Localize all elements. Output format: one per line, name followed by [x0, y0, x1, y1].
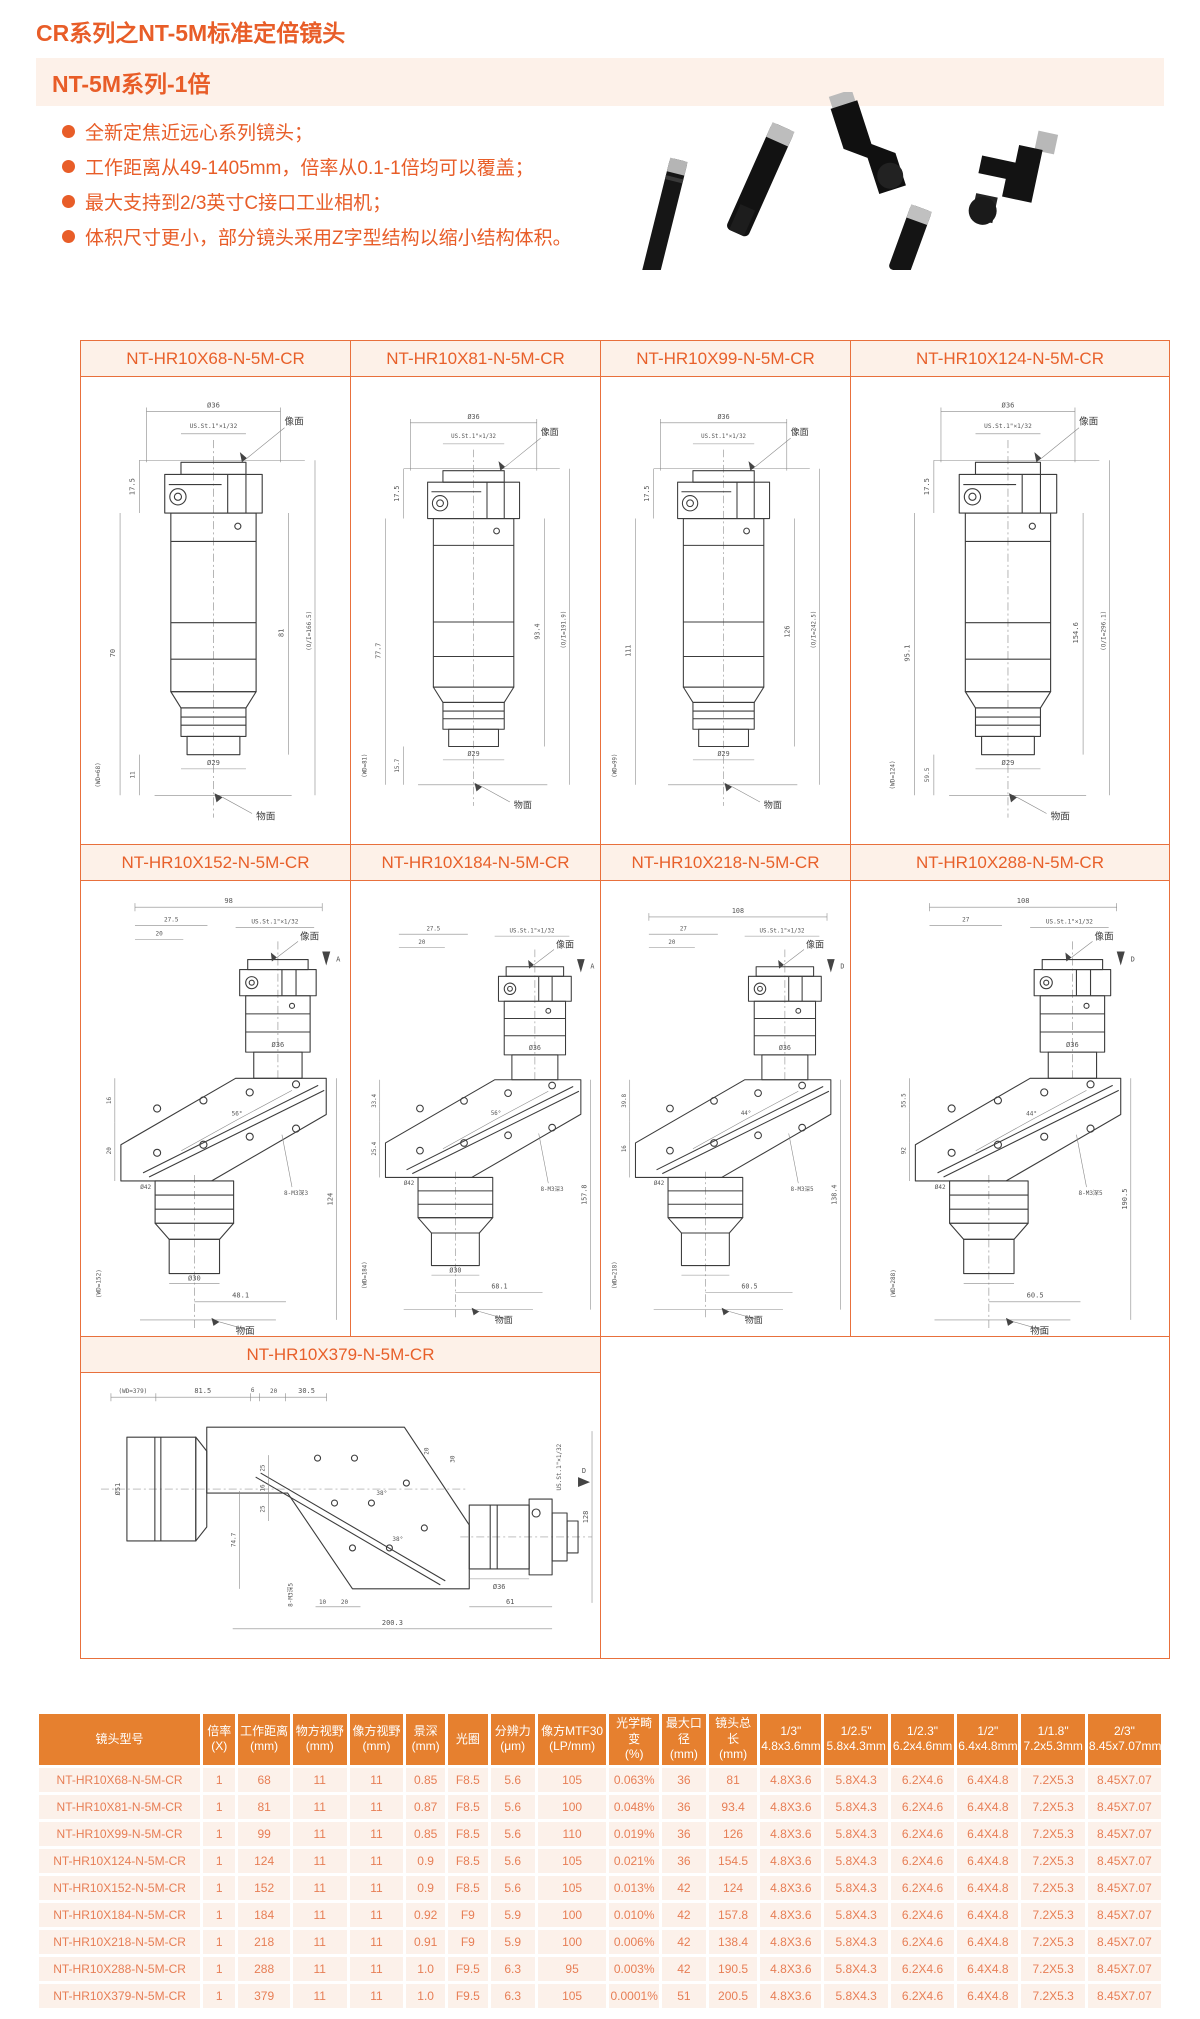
cell-sensor-1-2: 6.4X4.8 — [957, 1903, 1018, 1927]
cell-aperture: F8.5 — [448, 1822, 488, 1846]
cell-aperture: F9 — [448, 1930, 488, 1954]
dim-label: US.St.1"×1/32 — [451, 434, 496, 440]
cell-image-fov: 11 — [350, 1903, 404, 1927]
dim-label: 56° — [491, 1111, 501, 1117]
header-line1: 1/2.5" — [825, 1724, 886, 1740]
table-header-cell: 1/2.5" 5.8x4.3mm — [824, 1714, 887, 1765]
cell-max-diameter: 36 — [662, 1768, 706, 1792]
lens-outline — [121, 960, 326, 1274]
cell-sensor-1-2-5: 5.8X4.3 — [824, 1984, 887, 2008]
cell-sensor-1-2: 6.4X4.8 — [957, 1876, 1018, 1900]
table-header-cell: 光学畸变 (%) — [609, 1714, 658, 1765]
table-header-cell: 镜头型号 — [39, 1714, 200, 1765]
dim-label: 11 — [129, 771, 136, 779]
header-line2: 6.2x4.6mm — [892, 1739, 953, 1755]
table-row: NT-HR10X99-N-5M-CR 1 99 11 11 0.85 F8.5 … — [39, 1822, 1161, 1846]
header-line1: 镜头总长 — [710, 1716, 756, 1747]
table-row: NT-HR10X81-N-5M-CR 1 81 11 11 0.87 F8.5 … — [39, 1795, 1161, 1819]
model-cell: NT-HR10X152-N-5M-CR — [39, 1876, 200, 1900]
cell-sensor-1-3: 4.8X3.6 — [760, 1930, 821, 1954]
dim-label: 20 — [106, 1147, 113, 1155]
cell-object-fov: 11 — [293, 1849, 347, 1873]
cell-mtf30: 110 — [538, 1822, 607, 1846]
view-arrow-label: D — [582, 1467, 586, 1475]
view-arrow-label: A — [336, 955, 341, 964]
dim-label: 55.5 — [900, 1093, 907, 1108]
model-cell: NT-HR10X379-N-5M-CR — [39, 1984, 200, 2008]
header-line1: 最大口径 — [663, 1716, 705, 1747]
dim-label: 38° — [392, 1536, 403, 1543]
bullet-icon — [62, 160, 75, 173]
cell-aperture: F8.5 — [448, 1768, 488, 1792]
cell-total-length: 81 — [709, 1768, 757, 1792]
table-header-cell: 物方视野 (mm) — [293, 1714, 347, 1765]
table-header-cell: 景深 (mm) — [406, 1714, 445, 1765]
dim-label: 81.5 — [194, 1387, 211, 1395]
cell-sensor-1-1-8: 7.2X5.3 — [1021, 1876, 1084, 1900]
dimension-labels: 108 27 20 US.St.1"×1/32 像面 D Ø36 44° 39.… — [612, 907, 844, 1326]
drawing-title-99: NT-HR10X99-N-5M-CR — [601, 341, 851, 377]
table-header-cell: 工作距离 (mm) — [238, 1714, 290, 1765]
dim-label: 8-M3深5 — [1078, 1189, 1103, 1197]
dim-label: Ø36 — [529, 1044, 541, 1052]
dim-label: (O/I=191.9) — [562, 611, 568, 649]
cell-working-distance: 218 — [238, 1930, 290, 1954]
dim-label: (WD=218) — [612, 1261, 618, 1289]
cell-distortion: 0.006% — [609, 1930, 658, 1954]
header-line2: (mm) — [351, 1739, 403, 1755]
dim-label: Ø36 — [272, 1040, 285, 1049]
dim-label: 111 — [625, 645, 633, 657]
table-header-cell: 分辨力 (μm) — [491, 1714, 535, 1765]
drawing-184: 27.5 20 US.St.1"×1/32 像面 A Ø36 56° 33.4 … — [351, 881, 601, 1337]
cell-working-distance: 68 — [238, 1768, 290, 1792]
cell-sensor-2-3: 8.45X7.07 — [1088, 1984, 1161, 2008]
dim-label: 16 — [260, 1484, 267, 1492]
feature-item: 工作距离从49-1405mm，倍率从0.1-1倍均可以覆盖； — [62, 149, 572, 184]
lens-drawing: Ø36 US.St.1"×1/32 像面 17.5 77.7 93.4 (O/I… — [351, 377, 600, 844]
dim-label: 25 — [260, 1464, 267, 1472]
dim-label: 108 — [732, 907, 744, 915]
cell-sensor-1-1-8: 7.2X5.3 — [1021, 1822, 1084, 1846]
dim-label: 190.5 — [1120, 1189, 1129, 1210]
drawing-218: 108 27 20 US.St.1"×1/32 像面 D Ø36 44° 39.… — [601, 881, 851, 1337]
cell-max-diameter: 42 — [662, 1930, 706, 1954]
dim-label: Ø36 — [468, 413, 480, 421]
dimension-labels: Ø36 US.St.1"×1/32 像面 17.5 95.1 154.6 (O/… — [889, 400, 1107, 822]
cell-sensor-1-3: 4.8X3.6 — [760, 1768, 821, 1792]
dim-label: 81 — [277, 629, 286, 638]
dim-label: Ø51 — [114, 1483, 122, 1496]
cell-distortion: 0.0001% — [609, 1984, 658, 2008]
cell-magnification: 1 — [203, 1822, 235, 1846]
cell-sensor-2-3: 8.45X7.07 — [1088, 1768, 1161, 1792]
dim-label: US.St.1"×1/32 — [556, 1443, 563, 1490]
dimension-labels: Ø36 US.St.1"×1/32 像面 17.5 77.7 93.4 (O/I… — [362, 413, 567, 811]
dim-label: 27 — [680, 926, 687, 932]
cell-max-diameter: 51 — [662, 1984, 706, 2008]
dim-label: (WD=288) — [890, 1269, 897, 1298]
dim-label: (WD=81) — [362, 754, 368, 778]
table-header-cell: 最大口径 (mm) — [662, 1714, 706, 1765]
drawing-title-68: NT-HR10X68-N-5M-CR — [81, 341, 351, 377]
model-cell: NT-HR10X288-N-5M-CR — [39, 1957, 200, 1981]
header-line1: 景深 — [407, 1724, 444, 1740]
dim-label: 93.4 — [534, 624, 542, 640]
dim-label: 77.7 — [375, 643, 383, 659]
table-header-cell: 1/2.3" 6.2x4.6mm — [891, 1714, 954, 1765]
dim-label: 44° — [1026, 1110, 1037, 1118]
cell-magnification: 1 — [203, 1768, 235, 1792]
dim-label: Ø29 — [207, 758, 220, 767]
dim-label: US.St.1"×1/32 — [251, 918, 298, 925]
cell-sensor-1-1-8: 7.2X5.3 — [1021, 1795, 1084, 1819]
header-line1: 光圈 — [449, 1732, 487, 1748]
dimension-lines — [630, 913, 841, 1319]
cell-sensor-1-1-8: 7.2X5.3 — [1021, 1849, 1084, 1873]
table-header-cell: 1/3" 4.8x3.6mm — [760, 1714, 821, 1765]
lens-drawing-z: 108 27 US.St.1"×1/32 像面 D Ø36 44° 55.5 9… — [851, 881, 1169, 1336]
spec-table: 镜头型号 倍率 (X) 工作距离 (mm) 物方视野 (mm) — [36, 1711, 1164, 2011]
cell-max-diameter: 36 — [662, 1822, 706, 1846]
dim-label: Ø29 — [1002, 758, 1015, 767]
lens-outline — [635, 967, 830, 1266]
drawing-99: Ø36 US.St.1"×1/32 像面 17.5 111 126 (O/I=2… — [601, 377, 851, 845]
bullet-icon — [62, 125, 75, 138]
dim-label: 44° — [741, 1111, 751, 1117]
dim-label: 30.5 — [298, 1387, 315, 1395]
table-row: NT-HR10X68-N-5M-CR 1 68 11 11 0.85 F8.5 … — [39, 1768, 1161, 1792]
dimension-labels: Ø36 US.St.1"×1/32 像面 17.5 70 81 (O/I=166… — [95, 400, 313, 822]
page-title: CR系列之NT-5M标准定倍镜头 — [36, 14, 345, 48]
dim-label: 60.5 — [741, 1283, 757, 1291]
cell-sensor-1-2-5: 5.8X4.3 — [824, 1903, 887, 1927]
lens-drawing: Ø36 US.St.1"×1/32 像面 17.5 70 81 (O/I=166… — [81, 377, 350, 844]
object-plane-label: 物面 — [514, 799, 532, 811]
cell-sensor-1-2-3: 6.2X4.6 — [891, 1903, 954, 1927]
cell-mtf30: 105 — [538, 1984, 607, 2008]
cell-distortion: 0.010% — [609, 1903, 658, 1927]
view-arrow-label: D — [1131, 955, 1135, 964]
dim-label: 95.1 — [902, 645, 911, 662]
drawing-title-288: NT-HR10X288-N-5M-CR — [851, 845, 1169, 881]
drawing-title-218: NT-HR10X218-N-5M-CR — [601, 845, 851, 881]
dim-label: Ø36 — [1066, 1040, 1079, 1049]
cell-mtf30: 95 — [538, 1957, 607, 1981]
dim-label: (WD=124) — [889, 760, 896, 789]
header-line2: (%) — [610, 1747, 657, 1763]
dim-label: 48.1 — [232, 1291, 249, 1300]
feature-item: 体积尺寸更小，部分镜头采用Z字型结构以缩小结构体积。 — [62, 219, 572, 254]
image-plane-label: 像面 — [791, 426, 809, 438]
dim-label: US.St.1"×1/32 — [701, 434, 746, 440]
image-plane-label: 像面 — [300, 930, 320, 942]
cell-resolution: 5.6 — [491, 1768, 535, 1792]
header-line1: 1/2" — [958, 1724, 1017, 1740]
dimension-labels: Ø36 US.St.1"×1/32 像面 17.5 111 126 (O/I=2… — [612, 413, 817, 811]
cell-object-fov: 11 — [293, 1984, 347, 2008]
cell-aperture: F9.5 — [448, 1984, 488, 2008]
header-line1: 像方视野 — [351, 1724, 403, 1740]
drawing-124: Ø36 US.St.1"×1/32 像面 17.5 95.1 154.6 (O/… — [851, 377, 1169, 845]
dim-label: Ø29 — [718, 750, 730, 758]
cell-working-distance: 81 — [238, 1795, 290, 1819]
cell-sensor-1-2-3: 6.2X4.6 — [891, 1822, 954, 1846]
image-plane-label: 像面 — [285, 416, 305, 428]
dim-label: US.St.1"×1/32 — [510, 928, 555, 934]
dim-label: 70 — [108, 649, 117, 658]
header-line1: 1/1.8" — [1022, 1724, 1083, 1740]
dimension-labels: 108 27 US.St.1"×1/32 像面 D Ø36 44° 55.5 9… — [890, 896, 1135, 1336]
dim-label: 27.5 — [164, 916, 179, 923]
dim-label: 20 — [156, 930, 164, 937]
dim-label: US.St.1"×1/32 — [190, 423, 238, 430]
dim-label: 108 — [1017, 896, 1030, 905]
cell-sensor-1-3: 4.8X3.6 — [760, 1903, 821, 1927]
drawing-81: Ø36 US.St.1"×1/32 像面 17.5 77.7 93.4 (O/I… — [351, 377, 601, 845]
dim-label: Ø36 — [1002, 400, 1015, 409]
drawing-152: 98 27.5 20 US.St.1"×1/32 像面 A Ø36 56° 16… — [81, 881, 351, 1337]
dimension-labels: (WD=379) 81.5 6 20 30.5 Ø51 74.7 25 16 2… — [114, 1387, 590, 1627]
dim-label: 138.4 — [831, 1185, 839, 1205]
cell-dof: 0.9 — [406, 1849, 445, 1873]
lens-outline — [127, 1427, 578, 1589]
cell-object-fov: 11 — [293, 1795, 347, 1819]
header-line2: 5.8x4.3mm — [825, 1739, 886, 1755]
header-line1: 1/3" — [761, 1724, 820, 1740]
model-cell: NT-HR10X68-N-5M-CR — [39, 1768, 200, 1792]
dim-label: (O/I=296.1) — [1100, 611, 1107, 651]
dim-label: Ø29 — [468, 750, 480, 758]
cell-sensor-1-2-3: 6.2X4.6 — [891, 1930, 954, 1954]
cell-object-fov: 11 — [293, 1957, 347, 1981]
dim-label: US.St.1"×1/32 — [760, 928, 805, 934]
cell-sensor-1-2: 6.4X4.8 — [957, 1822, 1018, 1846]
image-plane-label: 像面 — [806, 939, 824, 951]
cell-sensor-1-2-3: 6.2X4.6 — [891, 1768, 954, 1792]
dim-label: Ø42 — [404, 1180, 414, 1187]
cell-resolution: 5.9 — [491, 1930, 535, 1954]
cell-working-distance: 99 — [238, 1822, 290, 1846]
header-line1: 2/3" — [1089, 1724, 1160, 1740]
cell-sensor-1-2-5: 5.8X4.3 — [824, 1957, 887, 1981]
cell-mtf30: 105 — [538, 1768, 607, 1792]
header-line2: (μm) — [492, 1739, 534, 1755]
cell-dof: 0.91 — [406, 1930, 445, 1954]
drawing-68: Ø36 US.St.1"×1/32 像面 17.5 70 81 (O/I=166… — [81, 377, 351, 845]
table-row: NT-HR10X379-N-5M-CR 1 379 11 11 1.0 F9.5… — [39, 1984, 1161, 2008]
cell-max-diameter: 36 — [662, 1795, 706, 1819]
cell-dof: 0.87 — [406, 1795, 445, 1819]
dim-label: Ø42 — [140, 1183, 151, 1191]
dim-label: 20 — [270, 1388, 278, 1395]
grid-empty-cell — [601, 1337, 1169, 1658]
drawing-title-184: NT-HR10X184-N-5M-CR — [351, 845, 601, 881]
cell-sensor-1-2: 6.4X4.8 — [957, 1930, 1018, 1954]
dimension-labels: 98 27.5 20 US.St.1"×1/32 像面 A Ø36 56° 16… — [96, 896, 341, 1336]
cell-mtf30: 100 — [538, 1903, 607, 1927]
cell-sensor-1-2: 6.4X4.8 — [957, 1984, 1018, 2008]
dim-label: (WD=152) — [96, 1269, 103, 1298]
dimension-lines — [915, 407, 1110, 813]
cell-sensor-1-2-5: 5.8X4.3 — [824, 1822, 887, 1846]
lens-drawing-horizontal: (WD=379) 81.5 6 20 30.5 Ø51 74.7 25 16 2… — [81, 1373, 600, 1658]
dim-label: 61 — [506, 1598, 514, 1606]
cell-distortion: 0.013% — [609, 1876, 658, 1900]
cell-sensor-1-3: 4.8X3.6 — [760, 1822, 821, 1846]
dim-label: 30 — [449, 1455, 456, 1463]
image-plane-label: 像面 — [541, 426, 559, 438]
cell-sensor-1-1-8: 7.2X5.3 — [1021, 1984, 1084, 2008]
cell-working-distance: 379 — [238, 1984, 290, 2008]
dim-label: 16 — [106, 1096, 113, 1104]
header-line2: (mm) — [407, 1739, 444, 1755]
dim-label: 20 — [418, 940, 425, 946]
cell-total-length: 126 — [709, 1822, 757, 1846]
drawing-379: (WD=379) 81.5 6 20 30.5 Ø51 74.7 25 16 2… — [81, 1373, 601, 1658]
cell-sensor-1-3: 4.8X3.6 — [760, 1876, 821, 1900]
image-plane-label: 像面 — [556, 939, 574, 951]
cell-sensor-1-1-8: 7.2X5.3 — [1021, 1903, 1084, 1927]
spec-table-head: 镜头型号 倍率 (X) 工作距离 (mm) 物方视野 (mm) — [39, 1714, 1161, 1765]
table-row: NT-HR10X288-N-5M-CR 1 288 11 11 1.0 F9.5… — [39, 1957, 1161, 1981]
drawing-288: 108 27 US.St.1"×1/32 像面 D Ø36 44° 55.5 9… — [851, 881, 1169, 1337]
bullet-icon — [62, 230, 75, 243]
cell-sensor-1-2: 6.4X4.8 — [957, 1795, 1018, 1819]
cell-object-fov: 11 — [293, 1768, 347, 1792]
drawing-title-152: NT-HR10X152-N-5M-CR — [81, 845, 351, 881]
cell-dof: 0.92 — [406, 1903, 445, 1927]
cell-image-fov: 11 — [350, 1957, 404, 1981]
cell-distortion: 0.021% — [609, 1849, 658, 1873]
dim-label: Ø30 — [449, 1266, 461, 1274]
header-line2: (LP/mm) — [539, 1739, 606, 1755]
cell-aperture: F8.5 — [448, 1849, 488, 1873]
cell-sensor-1-2-3: 6.2X4.6 — [891, 1876, 954, 1900]
cell-sensor-1-2-3: 6.2X4.6 — [891, 1984, 954, 2008]
dim-label: US.St.1"×1/32 — [984, 423, 1032, 430]
cell-sensor-1-2: 6.4X4.8 — [957, 1849, 1018, 1873]
cell-sensor-1-2-3: 6.2X4.6 — [891, 1957, 954, 1981]
dim-label: 27.5 — [426, 926, 440, 932]
cell-magnification: 1 — [203, 1930, 235, 1954]
feature-item: 全新定焦近远心系列镜头； — [62, 114, 572, 149]
dim-label: 17.5 — [643, 486, 651, 502]
series-banner-label: NT-5M系列-1倍 — [36, 65, 210, 99]
cell-sensor-1-2-3: 6.2X4.6 — [891, 1795, 954, 1819]
cell-sensor-2-3: 8.45X7.07 — [1088, 1795, 1161, 1819]
cell-max-diameter: 36 — [662, 1849, 706, 1873]
header-line2: (mm) — [710, 1747, 756, 1763]
dim-label: Ø36 — [779, 1044, 791, 1052]
drawing-title-81: NT-HR10X81-N-5M-CR — [351, 341, 601, 377]
object-plane-label: 物面 — [745, 1314, 763, 1326]
cell-dof: 0.9 — [406, 1876, 445, 1900]
lens-outline — [915, 960, 1120, 1274]
cell-sensor-1-1-8: 7.2X5.3 — [1021, 1768, 1084, 1792]
table-row: NT-HR10X218-N-5M-CR 1 218 11 11 0.91 F9 … — [39, 1930, 1161, 1954]
cell-dof: 1.0 — [406, 1984, 445, 2008]
cell-image-fov: 11 — [350, 1822, 404, 1846]
cell-working-distance: 124 — [238, 1849, 290, 1873]
drawing-grid: NT-HR10X68-N-5M-CR NT-HR10X81-N-5M-CR NT… — [80, 340, 1170, 1659]
product-photo — [612, 92, 1090, 270]
header-line1: 倍率 — [204, 1724, 234, 1740]
object-plane-label: 物面 — [764, 799, 782, 811]
lens-drawing-z: 98 27.5 20 US.St.1"×1/32 像面 A Ø36 56° 16… — [81, 881, 350, 1336]
lens-drawing: Ø36 US.St.1"×1/32 像面 17.5 111 126 (O/I=2… — [601, 377, 850, 844]
cell-sensor-1-2-5: 5.8X4.3 — [824, 1849, 887, 1873]
cell-image-fov: 11 — [350, 1930, 404, 1954]
header-line1: 像方MTF30 — [539, 1724, 606, 1740]
table-header-cell: 光圈 — [448, 1714, 488, 1765]
dimension-lines — [115, 903, 336, 1330]
cell-total-length: 190.5 — [709, 1957, 757, 1981]
dim-label: 20 — [423, 1447, 430, 1455]
cell-magnification: 1 — [203, 1876, 235, 1900]
cell-object-fov: 11 — [293, 1822, 347, 1846]
spec-table-body: NT-HR10X68-N-5M-CR 1 68 11 11 0.85 F8.5 … — [39, 1768, 1161, 2008]
cell-sensor-2-3: 8.45X7.07 — [1088, 1849, 1161, 1873]
object-plane-label: 物面 — [236, 1325, 256, 1336]
bullet-icon — [62, 195, 75, 208]
cell-image-fov: 11 — [350, 1984, 404, 2008]
dim-label: 33.4 — [372, 1093, 378, 1107]
cell-aperture: F8.5 — [448, 1876, 488, 1900]
dim-label: 68.1 — [491, 1283, 507, 1291]
dim-label: (O/I=242.5) — [812, 611, 818, 649]
cell-distortion: 0.003% — [609, 1957, 658, 1981]
dim-label: 17.5 — [922, 478, 931, 495]
cell-aperture: F9 — [448, 1903, 488, 1927]
cell-dof: 0.85 — [406, 1768, 445, 1792]
header-line1: 工作距离 — [239, 1724, 289, 1740]
dim-label: 8-M3深5 — [287, 1582, 295, 1606]
cell-image-fov: 11 — [350, 1876, 404, 1900]
cell-magnification: 1 — [203, 1957, 235, 1981]
cell-sensor-1-3: 4.8X3.6 — [760, 1849, 821, 1873]
object-plane-label: 物面 — [495, 1314, 513, 1326]
cell-resolution: 6.3 — [491, 1957, 535, 1981]
model-cell: NT-HR10X81-N-5M-CR — [39, 1795, 200, 1819]
cell-sensor-2-3: 8.45X7.07 — [1088, 1957, 1161, 1981]
lens-drawing-z: 108 27 20 US.St.1"×1/32 像面 D Ø36 44° 39.… — [601, 881, 850, 1336]
cell-distortion: 0.048% — [609, 1795, 658, 1819]
image-plane-label: 像面 — [1095, 930, 1115, 942]
dim-label: 60.5 — [1027, 1291, 1044, 1300]
header-line2: (mm) — [663, 1747, 705, 1763]
dim-label: Ø42 — [654, 1180, 664, 1187]
cell-working-distance: 152 — [238, 1876, 290, 1900]
dim-label: 124 — [325, 1193, 334, 1206]
dim-label: Ø36 — [718, 413, 730, 421]
dim-label: 20 — [341, 1599, 349, 1606]
dim-label: 25.4 — [372, 1141, 378, 1155]
cell-object-fov: 11 — [293, 1930, 347, 1954]
header-line1: 分辨力 — [492, 1724, 534, 1740]
table-row: NT-HR10X124-N-5M-CR 1 124 11 11 0.9 F8.5… — [39, 1849, 1161, 1873]
drawing-title-124: NT-HR10X124-N-5M-CR — [851, 341, 1169, 377]
dim-label: (WD=99) — [612, 754, 618, 778]
cell-sensor-1-2: 6.4X4.8 — [957, 1768, 1018, 1792]
cell-total-length: 124 — [709, 1876, 757, 1900]
cell-sensor-2-3: 8.45X7.07 — [1088, 1930, 1161, 1954]
dim-label: 16 — [622, 1145, 628, 1152]
header-line1: 光学畸变 — [610, 1716, 657, 1747]
cell-distortion: 0.063% — [609, 1768, 658, 1792]
dimension-lines — [635, 419, 819, 802]
dim-label: 8-M3深3 — [541, 1185, 565, 1193]
